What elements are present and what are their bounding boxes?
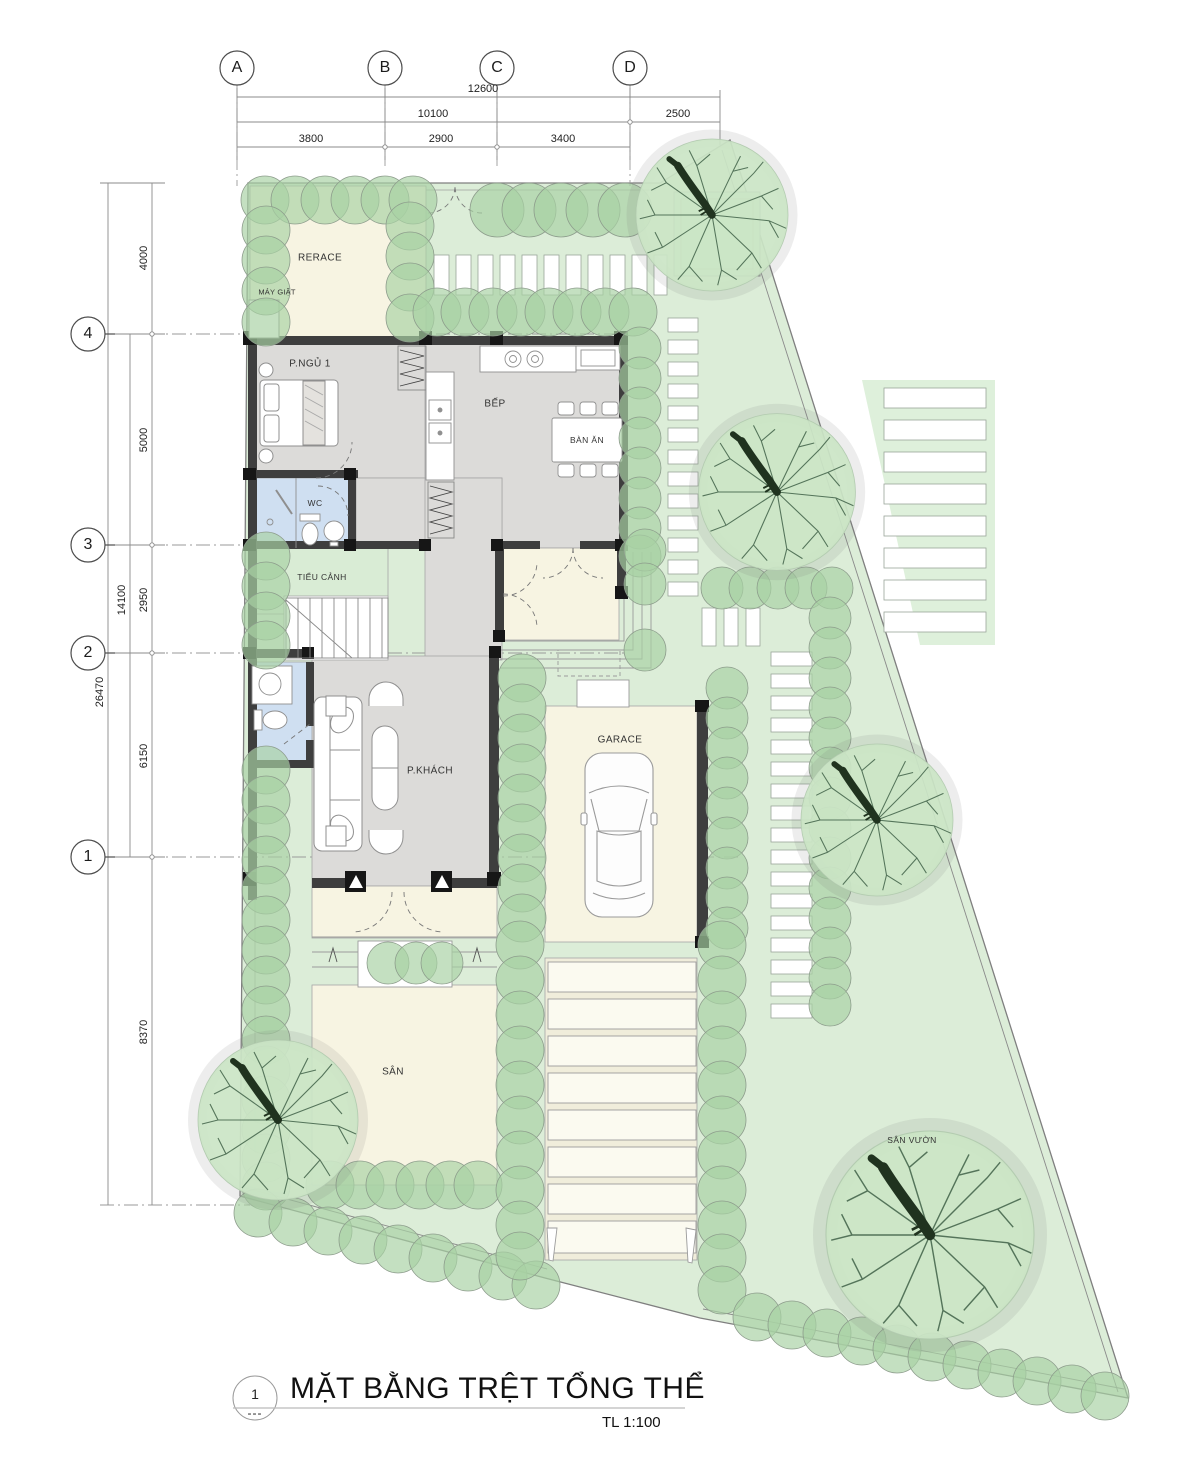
sheet-number: 1 [251,1386,259,1402]
room-label-living: P.KHÁCH [407,766,453,777]
room-label-dining: BÀN ĂN [570,435,604,445]
dim-seg-cd: 3400 [551,133,575,145]
room-label-garden: SÂN VƯỜN [887,1135,936,1145]
sheet-dashes: --- [248,1406,263,1420]
grid-col-d: D [624,59,636,77]
car [581,753,657,917]
dim-left-8370: 8370 [138,1020,150,1044]
room-label-kitchen: BẾP [484,399,505,410]
tree-garden [821,1126,1039,1344]
dim-left-5000: 5000 [138,428,150,452]
grid-col-c: C [491,59,503,77]
room-label-wc: WC [308,498,323,508]
dim-top-right: 2500 [666,108,690,120]
dim-left-4000: 4000 [138,246,150,270]
grid-row-1: 1 [84,848,93,866]
room-label-washer: MÁY GIẶT [258,288,295,297]
grid-row-4: 4 [84,325,93,343]
dim-left-6150: 6150 [138,744,150,768]
dim-left-outer: 26470 [94,677,106,708]
dim-seg-ab: 3800 [299,133,323,145]
room-label-yard: SÂN [382,1067,404,1078]
drawing-title: MẶT BẰNG TRỆT TỔNG THỂ [290,1372,705,1406]
room-label-terrace: RERACE [298,253,342,264]
furniture-wc2 [252,666,292,730]
tree-top-right [632,135,792,295]
dim-seg-bc: 2900 [429,133,453,145]
room-label-tieu-canh: TIỂU CẢNH [297,572,346,582]
room-label-garage: GARACE [598,735,643,746]
tree-right-mid [797,740,957,900]
grid-col-a: A [232,59,243,77]
dim-left-2950: 2950 [138,588,150,612]
tree-bottom-left [194,1036,362,1204]
dim-top-total: 12600 [468,83,499,95]
exterior-boundary-steps [862,380,995,645]
grid-col-b: B [380,59,391,77]
grid-row-2: 2 [84,644,93,662]
grid-row-3: 3 [84,536,93,554]
dim-left-mid: 14100 [116,585,128,616]
drawing-scale: TL 1:100 [602,1414,661,1431]
dim-top-left: 10100 [418,108,449,120]
floor-plan-sheet: A B C D 4 3 2 1 12600 10100 2500 3800 29… [0,0,1200,1473]
room-label-bedroom1: P.NGỦ 1 [289,359,331,370]
tree-right-upper [695,410,860,575]
